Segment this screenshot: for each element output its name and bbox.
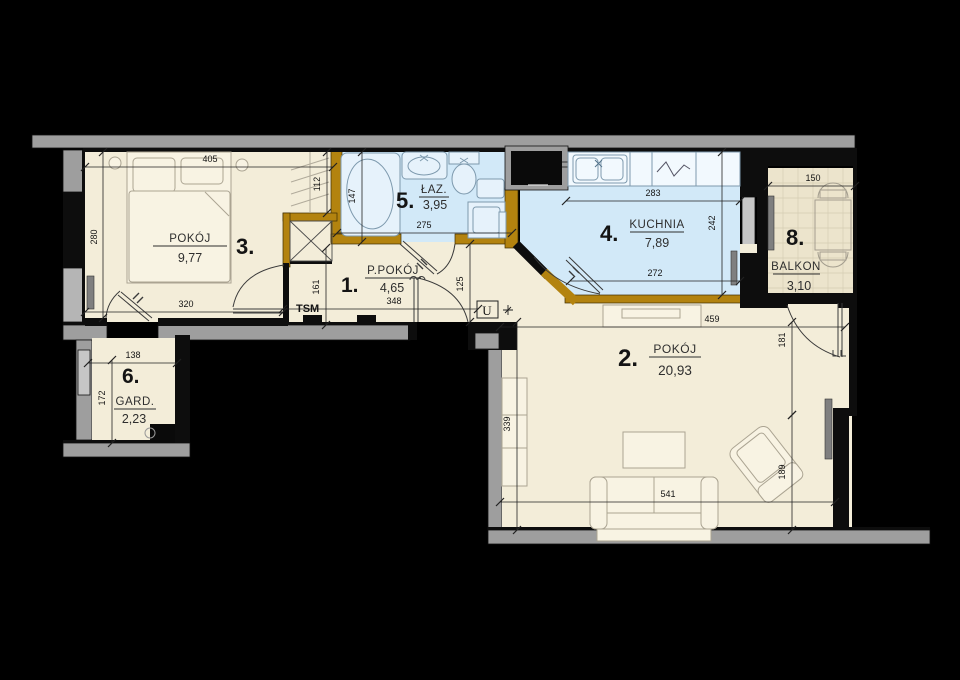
dimension-label: 172: [97, 390, 107, 405]
room-number: 6.: [122, 365, 140, 388]
wall-gard-right: [175, 335, 190, 443]
dimension-label: 339: [502, 416, 512, 431]
bedside-lamp-right: [236, 159, 248, 171]
edge-bottom-hall: [158, 322, 410, 325]
wall-room3-hall: [283, 263, 289, 322]
dimension-label: 275: [416, 220, 431, 230]
dimension-label: 150: [805, 173, 820, 183]
room-area: 4,65: [380, 281, 404, 295]
room-name: POKÓJ: [653, 341, 696, 356]
wall-left-mid: [63, 192, 85, 268]
gard-window: [78, 350, 90, 395]
sofa-armrest-left: [590, 477, 607, 529]
wall-balcony-top: [757, 148, 857, 166]
sink-bowl-left: [576, 158, 598, 180]
dimension-label: 320: [178, 299, 193, 309]
dimension-label: 147: [347, 188, 357, 203]
threshold-mat-1: [303, 315, 322, 322]
radiator-room3: [87, 276, 94, 309]
dimension-label: 272: [647, 268, 662, 278]
room-name: KUCHNIA: [629, 219, 684, 231]
room-area: 2,23: [122, 412, 146, 426]
room-number: 4.: [600, 221, 618, 246]
edge-bottom-left: [63, 322, 107, 325]
room-area: 9,77: [178, 251, 202, 265]
sofa-back: [597, 529, 711, 541]
room-number: 8.: [786, 225, 804, 250]
room-area: 20,93: [658, 363, 692, 378]
kitchen-fixtures: [568, 152, 740, 186]
floorplan-page: 4052803201121611472753481252832422724593…: [0, 0, 960, 680]
room-name: ŁAZ.: [421, 184, 447, 196]
threshold-mat-2: [357, 315, 376, 322]
wall-bottom-left: [63, 325, 107, 340]
utility-shaft: [505, 146, 578, 190]
floorplan-canvas: 4052803201121611472753481252832422724593…: [0, 0, 960, 680]
room-number: 1.: [341, 274, 359, 297]
wall-room2-right-upper: [849, 303, 857, 413]
wall-top-inner-edge: [83, 148, 757, 152]
dimension-label: 459: [704, 314, 719, 324]
balcony-floor: [768, 168, 855, 295]
tv: [622, 309, 680, 318]
wall-kitchen-bottom: [565, 295, 742, 303]
wall-room2-right-lower: [833, 415, 849, 530]
room-area: 7,89: [645, 236, 669, 250]
entrance-jamb: [408, 322, 417, 340]
sofa-armrest-right: [701, 477, 718, 529]
washbasin-bowl: [408, 157, 440, 175]
wall-top: [32, 135, 855, 148]
dimension-label: 242: [707, 215, 717, 230]
dimension-label: 112: [312, 177, 322, 191]
wall-bottom-hall: [158, 325, 410, 340]
dimension-label: 283: [645, 188, 660, 198]
balcony-glazing: [768, 196, 774, 250]
wall-closet-top: [283, 213, 337, 221]
room-number: 2.: [618, 345, 638, 372]
bath-cabinet: [477, 179, 504, 198]
wall-left-window: [63, 268, 83, 322]
radiator-kitchen: [731, 251, 737, 285]
room-label-5: 5. ŁAZ. 3,95: [396, 184, 449, 213]
wall-closet-left: [283, 213, 290, 267]
toilet-bowl: [452, 164, 476, 194]
room-name: POKÓJ: [169, 232, 210, 245]
wall-gard-bottom: [63, 443, 190, 457]
bath-side-panel: [499, 212, 506, 238]
toilet-cistern: [449, 152, 479, 164]
room-name: P.POKÓJ: [367, 264, 419, 277]
wall-kitchen-right-upper: [740, 148, 757, 197]
wall-room2-right-step: [833, 408, 857, 416]
room-name: BALKON: [771, 261, 821, 273]
sink-bowl-right: [601, 158, 623, 180]
tsm-label: TSM: [296, 303, 319, 315]
wall-balcony-left: [757, 148, 768, 297]
pillow-1: [133, 158, 175, 192]
room-number: 3.: [236, 234, 254, 259]
room-area: 3,10: [787, 279, 811, 293]
dimension-label: 348: [386, 296, 401, 306]
wall-room2-top-a: [740, 300, 788, 308]
entrance-wall-pocket: [475, 333, 499, 349]
dimension-label: 541: [660, 489, 675, 499]
washing-machine-drum: [473, 207, 500, 233]
room-number: 5.: [396, 188, 414, 213]
wall-kitchen-left: [505, 188, 518, 248]
gard-shaft: [150, 424, 175, 443]
dimension-label: 280: [89, 229, 99, 244]
dimension-label: 125: [455, 276, 465, 291]
dimension-label: 138: [125, 350, 140, 360]
room-name: GARD.: [116, 396, 155, 408]
wall-left-upper: [63, 150, 83, 192]
u-marker-letter: U: [482, 303, 492, 318]
radiator-room2: [825, 399, 832, 459]
dimension-label: 189: [777, 464, 787, 479]
dimension-label: 161: [311, 279, 321, 294]
dimension-label: 181: [777, 332, 787, 347]
coffee-table: [623, 432, 685, 468]
room-area: 3,95: [423, 198, 447, 212]
dimension-label: 405: [202, 154, 217, 164]
